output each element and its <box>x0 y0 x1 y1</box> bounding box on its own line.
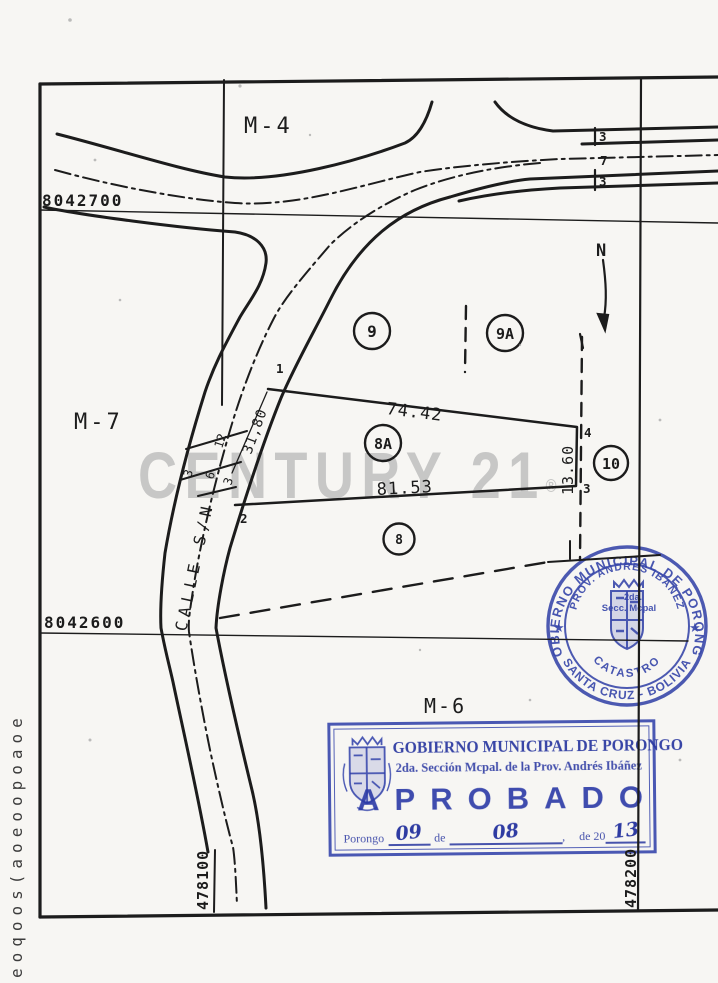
block-label-m6: M-6 <box>424 694 466 718</box>
road-width-top: 3 <box>599 129 607 144</box>
parcel-label-8a: 8A <box>374 435 392 453</box>
grid-coordinate-478100: 478100 <box>194 850 212 910</box>
plan-linework: M-4 M-7 M-6 8042700 8042600 478100 47820… <box>0 0 718 983</box>
street-name-label: CALLE S/N <box>171 500 217 633</box>
scanned-cadastral-plan: CENTURY 21® GOBIERNO MUNICIPAL DE PORONG… <box>0 0 718 983</box>
dimension-13-60: 13.60 <box>559 445 577 495</box>
dimension-tick-3b: 3 <box>221 476 237 487</box>
dimension-tick-3a: 3 <box>181 468 197 479</box>
parcel-label-9a: 9A <box>496 325 514 343</box>
road-lines <box>44 102 718 908</box>
dimension-81-53: 81.53 <box>376 477 433 500</box>
grid-coordinate-478200: 478200 <box>622 848 640 908</box>
block-label-m4: M-4 <box>244 114 293 139</box>
vertex-label-2: 2 <box>240 511 248 526</box>
north-arrow-icon <box>580 260 608 348</box>
dashed-boundaries <box>220 306 582 618</box>
north-arrow-label: N <box>596 241 606 261</box>
road-width-mid: 7 <box>600 153 608 168</box>
dimension-tick-12: 12 <box>212 432 230 450</box>
boundary-fragments <box>548 541 660 562</box>
parcel-label-9: 9 <box>367 322 377 341</box>
block-label-m7: M-7 <box>74 410 123 435</box>
vertex-label-3: 3 <box>583 481 591 496</box>
road-width-bottom: 3 <box>599 174 607 189</box>
vertex-label-1: 1 <box>276 361 284 376</box>
grid-coordinate-8042600: 8042600 <box>44 613 125 632</box>
grid-coordinate-8042700: 8042700 <box>42 191 123 210</box>
vertex-label-4: 4 <box>584 425 592 440</box>
illegible-vertical-text-fragment: eoqoos(aoeoopoaoe <box>7 712 26 978</box>
parcel-label-8: 8 <box>395 533 403 548</box>
dimension-74-42: 74.42 <box>385 399 443 426</box>
parcel-label-10: 10 <box>602 455 620 473</box>
